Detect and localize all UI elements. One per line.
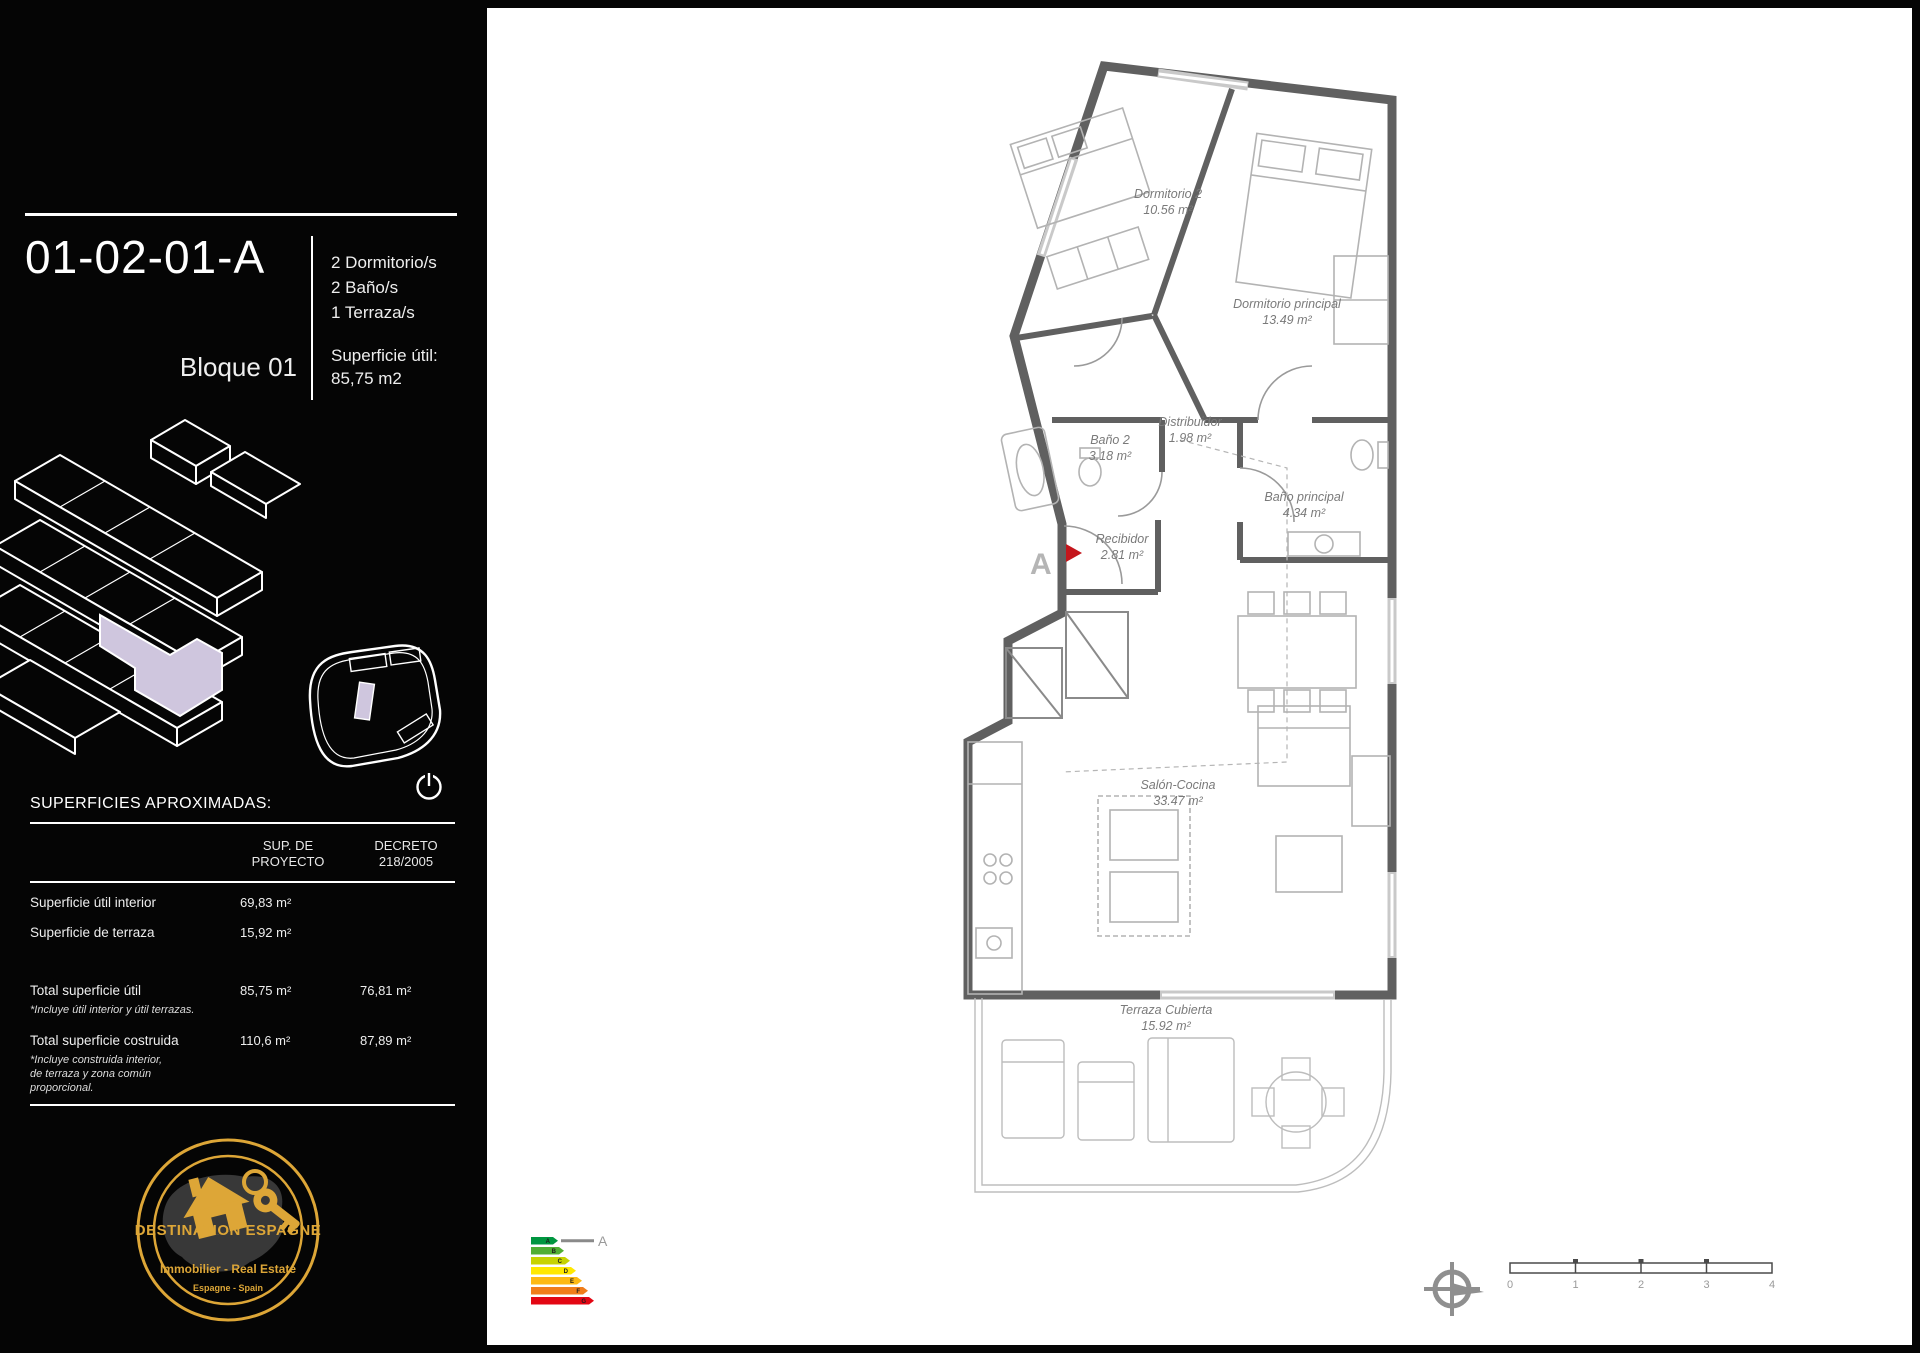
svg-text:F: F [576,1289,580,1295]
row-value-proyecto: 110,6 m² [240,1033,290,1048]
room-area: 1.98 m² [1169,431,1212,445]
power-icon [414,770,444,802]
table-rule-2 [30,881,455,883]
feature-bathrooms: 2 Baño/s [331,275,437,300]
room-area: 3.18 m² [1089,449,1132,463]
svg-text:1: 1 [1572,1279,1578,1291]
room-area: 4.34 m² [1283,506,1326,520]
svg-text:E: E [570,1279,574,1285]
superficie-util: Superficie útil: 85,75 m2 [331,344,438,390]
svg-text:0: 0 [1507,1279,1513,1291]
row-label: Superficie de terraza [30,925,155,940]
logo-subtitle: Immobilier - Real Estate [110,1262,346,1276]
row-value-decreto: 76,81 m² [360,983,411,998]
superficie-util-label: Superficie útil: [331,344,438,367]
entrance-marker: A [1030,544,1082,581]
room-area: 13.49 m² [1262,313,1312,327]
entrance-arrow-icon [1066,544,1082,562]
room-name: Salón-Cocina [1140,778,1215,792]
col-header-proyecto: SUP. DE PROYECTO [238,838,338,870]
feature-bedrooms: 2 Dormitorio/s [331,250,437,275]
svg-text:2: 2 [1638,1279,1644,1291]
room-name: Baño 2 [1090,433,1130,447]
surfaces-heading: SUPERFICIES APROXIMADAS: [30,795,272,813]
row-label: Superficie útil interior [30,895,156,910]
unit-code: 01-02-01-A [25,230,265,284]
energy-rating-icon: A B C D E F G A [531,1233,608,1305]
block-label: Bloque 01 [25,352,297,383]
room-name: Dormitorio principal [1233,297,1342,311]
row-value-proyecto: 15,92 m² [240,925,291,940]
highlighted-unit-site [355,682,375,720]
sidebar: 01-02-01-A Bloque 01 2 Dormitorio/s 2 Ba… [0,0,487,1353]
svg-text:B: B [552,1249,557,1255]
room-name: Terraza Cubierta [1120,1003,1213,1017]
room-area: 33.47 m² [1153,794,1203,808]
scale-bar: 0 1 2 3 4 [1507,1259,1775,1291]
room-area: 2.81 m² [1100,548,1144,562]
table-rule-3 [30,1104,455,1106]
svg-text:A: A [546,1239,551,1245]
header-divider [311,236,313,400]
site-plan-outline [310,645,440,766]
room-area: 10.56 m² [1143,203,1193,217]
row-note: *Incluye útil interior y útil terrazas. [30,1003,194,1017]
svg-text:D: D [564,1269,569,1275]
building-isometric-graphic [0,400,487,790]
room-name: Dormitorio 2 [1134,187,1202,201]
room-name: Baño principal [1264,490,1344,504]
row-value-decreto: 87,89 m² [360,1033,411,1048]
row-value-proyecto: 69,83 m² [240,895,291,910]
room-name: Distribuidor [1158,415,1222,429]
energy-indicator: A [598,1233,608,1249]
entrance-letter: A [1030,548,1052,581]
row-value-proyecto: 85,75 m² [240,983,291,998]
svg-text:4: 4 [1769,1279,1775,1291]
col-header-decreto: DECRETO 218/2005 [356,838,456,870]
unit-features: 2 Dormitorio/s 2 Baño/s 1 Terraza/s [331,250,437,325]
plan-area: A Dormitorio 2 10.56 m² Dormitorio princ… [487,8,1912,1345]
room-area: 15.92 m² [1141,1019,1191,1033]
superficie-util-value: 85,75 m2 [331,367,438,390]
row-note: *Incluye construida interior, de terraza… [30,1053,162,1095]
row-label: Total superficie útil [30,983,141,998]
logo-tagline: Espagne - Spain [110,1283,346,1293]
feature-terraces: 1 Terraza/s [331,300,437,325]
floor-plan-svg: A Dormitorio 2 10.56 m² Dormitorio princ… [487,8,1912,1345]
room-name: Recibidor [1096,532,1150,546]
svg-text:C: C [558,1259,563,1265]
table-rule-1 [30,822,455,824]
logo-title: DESTINATION ESPAGNE [110,1222,346,1239]
row-label: Total superficie costruida [30,1033,179,1048]
dashed-guide [1062,440,1287,772]
svg-text:G: G [581,1299,586,1305]
floor-plan-sheet: 01-02-01-A Bloque 01 2 Dormitorio/s 2 Ba… [0,0,1920,1353]
room-labels: Dormitorio 2 10.56 m² Dormitorio princip… [1089,187,1345,1033]
svg-text:3: 3 [1703,1279,1709,1291]
compass-icon [1424,1262,1484,1316]
divider-top [25,213,457,216]
